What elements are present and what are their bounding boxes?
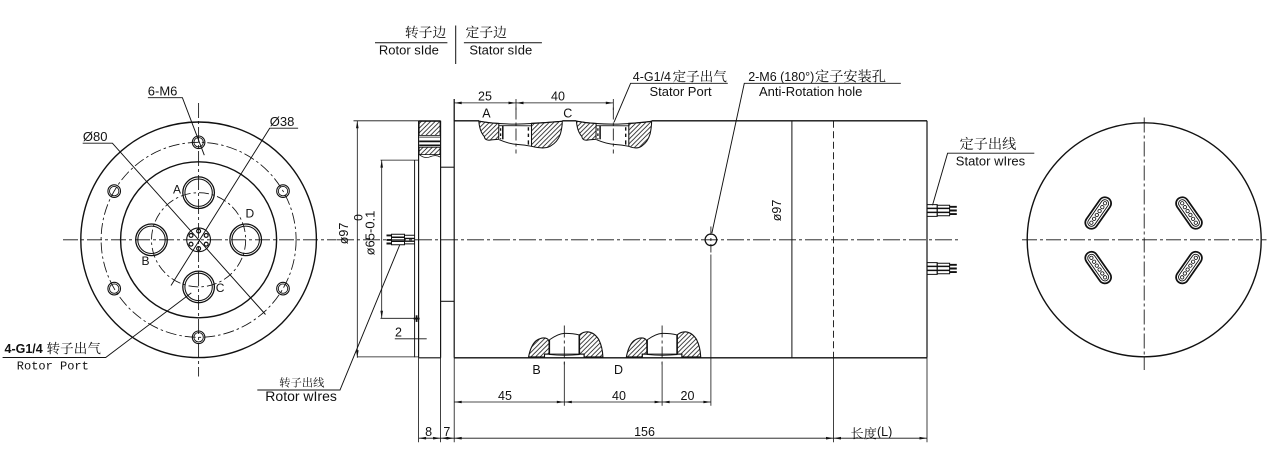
svg-text:Ø80: Ø80	[83, 129, 108, 144]
svg-text:Ø38: Ø38	[270, 114, 295, 129]
svg-text:0: 0	[352, 214, 366, 221]
svg-text:Anti-Rotation hole: Anti-Rotation hole	[759, 84, 862, 99]
svg-text:156: 156	[634, 425, 655, 439]
svg-text:(L): (L)	[877, 425, 892, 439]
svg-text:C: C	[563, 107, 572, 121]
svg-text:4-G1/4: 4-G1/4	[5, 342, 43, 356]
svg-text:ø97: ø97	[337, 223, 351, 245]
svg-text:ø97: ø97	[770, 200, 784, 222]
svg-text:2: 2	[395, 325, 402, 339]
svg-text:Stator sIde: Stator sIde	[469, 42, 532, 57]
svg-text:40: 40	[551, 89, 565, 103]
svg-text:Rotor sIde: Rotor sIde	[379, 42, 439, 57]
svg-text:D: D	[614, 363, 623, 377]
svg-text:D: D	[246, 207, 255, 221]
svg-text:A: A	[173, 183, 181, 197]
svg-text:2-M6 (180°): 2-M6 (180°)	[748, 70, 814, 84]
svg-text:25: 25	[478, 89, 492, 103]
svg-text:6-M6: 6-M6	[148, 84, 178, 99]
svg-text:A: A	[482, 107, 491, 121]
svg-text:B: B	[142, 254, 150, 268]
svg-text:45: 45	[498, 389, 512, 403]
svg-text:4-G1/4: 4-G1/4	[633, 70, 671, 84]
svg-text:8: 8	[425, 425, 432, 439]
svg-text:7: 7	[443, 425, 450, 439]
svg-text:20: 20	[681, 389, 695, 403]
svg-text:Stator wIres: Stator wIres	[956, 153, 1026, 168]
svg-text:40: 40	[612, 389, 626, 403]
svg-text:Rotor Port: Rotor Port	[17, 360, 89, 374]
svg-text:B: B	[532, 363, 540, 377]
svg-text:C: C	[216, 281, 225, 295]
svg-text:Stator Port: Stator Port	[650, 84, 713, 99]
